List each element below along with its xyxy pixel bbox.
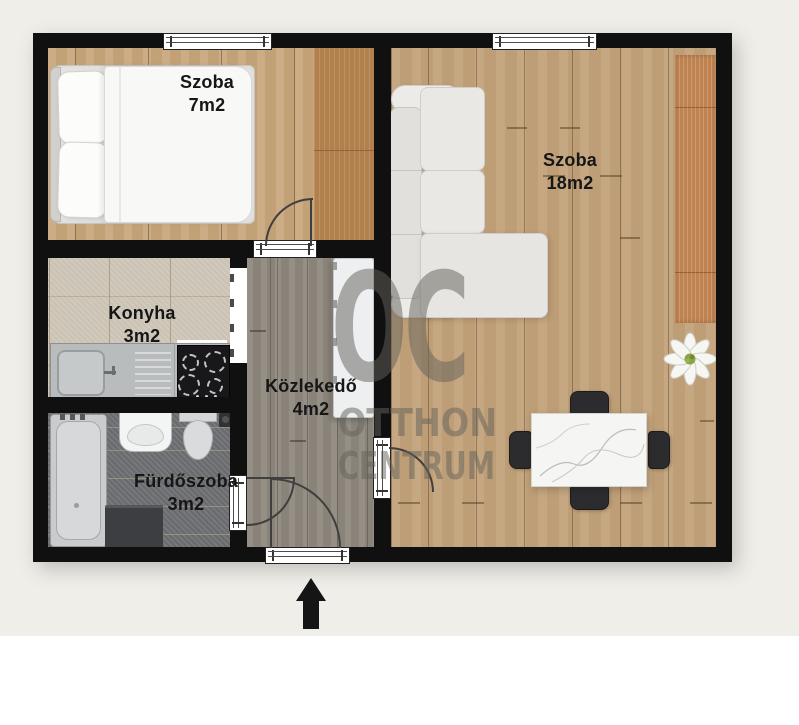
bathtub-faucet [80, 414, 85, 420]
burner [207, 378, 223, 394]
sofa-seat-cushion [420, 170, 485, 234]
room-area: 18m2 [505, 172, 635, 195]
plant [663, 332, 717, 386]
marble-veins [532, 414, 648, 488]
bathtub-basin [56, 421, 101, 540]
room-name: Közlekedő [246, 375, 376, 398]
kitchen-open-passage [230, 268, 247, 363]
sofa-cushion-seam [390, 170, 422, 171]
dining-chair [570, 485, 609, 510]
wall-bottom [33, 547, 732, 562]
pillow [57, 141, 109, 218]
bathroom-door-leaf [247, 477, 295, 479]
plank-joint [398, 502, 420, 504]
kitchen-sink [57, 350, 105, 396]
room-area: 3m2 [77, 325, 207, 348]
room-name: Szoba [142, 71, 272, 94]
burner [178, 374, 200, 396]
plank-joint [507, 127, 527, 129]
room-label-hallway: Közlekedő 4m2 [246, 375, 376, 421]
living-room-runner-rug [675, 55, 716, 323]
living-room-window [492, 33, 597, 50]
sofa-backrest [390, 107, 422, 299]
bathtub-faucet [70, 414, 75, 420]
plank-joint [560, 127, 580, 129]
wall-kitchen-bathroom [48, 397, 230, 413]
dining-chair [648, 431, 670, 469]
wall-right [716, 33, 732, 562]
plank-joint [290, 440, 306, 442]
room-label-living: Szoba 18m2 [505, 149, 635, 195]
plank-joint [462, 502, 484, 504]
room-label-bedroom: Szoba 7m2 [142, 71, 272, 117]
entrance-door-threshold [265, 547, 350, 564]
room-area: 3m2 [121, 493, 251, 516]
floorplan-canvas: Szoba 7m2 Szoba 18m2 Konyha 3m2 Közleked… [0, 0, 799, 725]
plank-joint [620, 237, 640, 239]
bathtub-faucet [60, 414, 65, 420]
bedroom-door-leaf [310, 198, 312, 246]
plank-joint [700, 420, 714, 422]
counter-divider [174, 343, 175, 402]
plank-joint [690, 502, 712, 504]
burner [182, 354, 199, 371]
room-name: Szoba [505, 149, 635, 172]
room-label-bathroom: Fürdőszoba 3m2 [121, 470, 251, 516]
plank-joint [250, 330, 266, 332]
room-name: Fürdőszoba [121, 470, 251, 493]
bedroom-wardrobe [313, 48, 374, 240]
entrance-arrow-icon [296, 578, 326, 601]
washbasin-bowl [127, 424, 164, 446]
room-area: 4m2 [246, 398, 376, 421]
entrance-arrow-shaft [303, 600, 319, 629]
plank-joint [620, 502, 642, 504]
sofa-seat-cushion [420, 87, 485, 171]
wall-top [33, 33, 732, 48]
sofa-cushion-seam [390, 234, 422, 235]
dining-table [531, 413, 647, 487]
room-label-kitchen: Konyha 3m2 [77, 302, 207, 348]
burner [204, 351, 226, 373]
sink-drainboard [135, 352, 171, 395]
sofa-chaise [420, 233, 548, 318]
lower-background [0, 636, 799, 725]
bedroom-window [163, 33, 272, 50]
wall-bedroom-bottom [48, 240, 374, 258]
wall-left [33, 33, 48, 562]
room-name: Konyha [77, 302, 207, 325]
pillow [57, 70, 109, 144]
dining-chair [509, 431, 532, 469]
bathtub-drain [74, 503, 79, 508]
sink-faucet-handle [112, 366, 115, 375]
room-area: 7m2 [142, 94, 272, 117]
